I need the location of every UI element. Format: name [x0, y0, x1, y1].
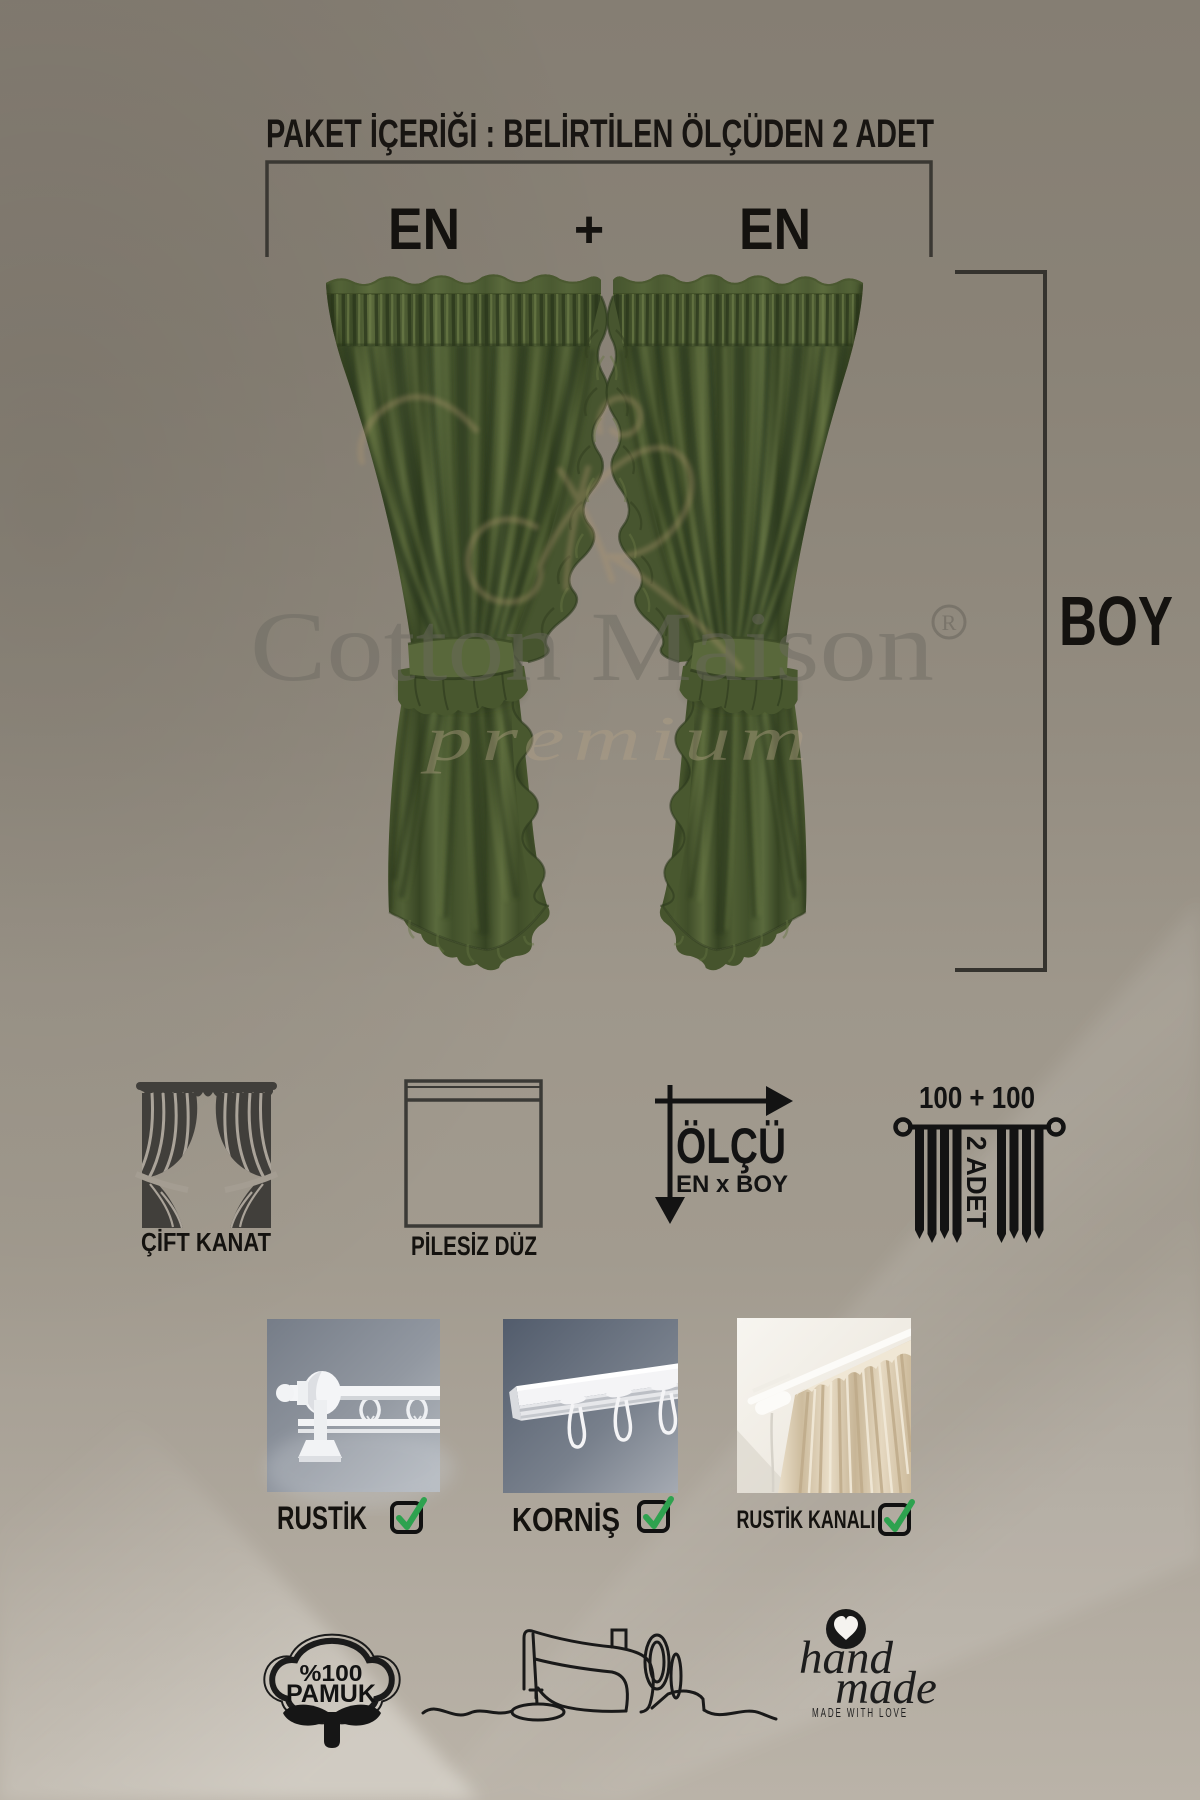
svg-text:EN: EN: [739, 197, 811, 262]
svg-text:EN: EN: [388, 197, 460, 262]
svg-text:ÇİFT KANAT: ÇİFT KANAT: [141, 1227, 271, 1257]
svg-text:ÖLÇÜ: ÖLÇÜ: [676, 1118, 786, 1174]
svg-text:R: R: [942, 610, 957, 635]
svg-text:PAKET İÇERİĞİ : BELİRTİLEN ÖLÇ: PAKET İÇERİĞİ : BELİRTİLEN ÖLÇÜDEN 2 ADE…: [266, 110, 934, 156]
svg-text:PİLESİZ DÜZ: PİLESİZ DÜZ: [411, 1231, 537, 1261]
svg-text:MADE WITH LOVE: MADE WITH LOVE: [812, 1705, 908, 1720]
svg-text:Cotton Maison: Cotton Maison: [250, 591, 934, 702]
svg-text:2 ADET: 2 ADET: [961, 1136, 992, 1228]
svg-text:KORNİŞ: KORNİŞ: [512, 1501, 620, 1538]
svg-text:RUSTİK: RUSTİK: [277, 1500, 367, 1536]
svg-text:PAMUK: PAMUK: [286, 1680, 376, 1708]
svg-text:+: +: [574, 201, 604, 259]
svg-text:BOY: BOY: [1059, 582, 1173, 660]
svg-text:100 + 100: 100 + 100: [919, 1080, 1035, 1115]
svg-text:RUSTİK KANALI: RUSTİK KANALI: [737, 1506, 876, 1534]
svg-text:EN x BOY: EN x BOY: [676, 1171, 788, 1198]
svg-text:premium: premium: [420, 703, 816, 774]
